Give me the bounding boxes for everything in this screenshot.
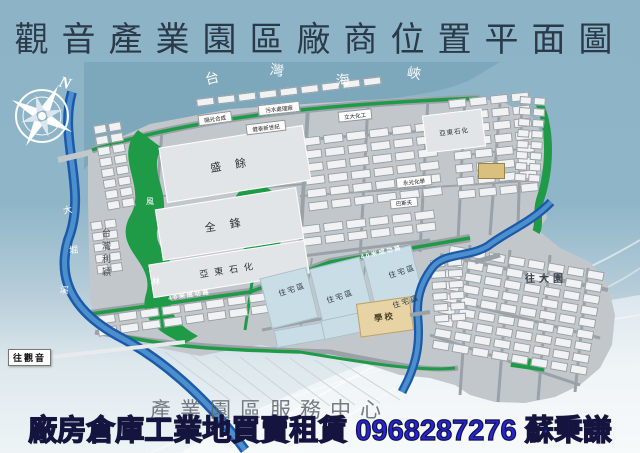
labels-layer: 住宅區住宅區住宅區住宅區學校40米成功路40米成功路台灣利穎風林台灣海峽大堀溪 [0, 0, 640, 453]
windbreak-label-char: 林 [152, 276, 160, 287]
river-label-char: 大 [62, 202, 74, 217]
north-label: N [56, 73, 75, 93]
taiwan-strait-label-char: 台 [203, 67, 221, 90]
map-stage: 盛餘全鋒亞東石化亞東石化污水處理廠陽光合成健泰新世紀立大化工永光化學巴斯夫 住宅… [0, 0, 640, 453]
road-label: 40米成功路 [360, 242, 404, 260]
direction-label-to-dayuan: 往大園 [525, 270, 567, 285]
residential-label: 住宅區 [325, 287, 356, 306]
taiwan-strait-label-char: 海 [335, 69, 351, 90]
residential-label: 住宅區 [391, 292, 422, 311]
sales-banner: 廠房倉庫工業地買賣租賃 0968287276 蘇秉謙 [0, 407, 640, 449]
school-label: 學校 [373, 310, 395, 325]
company-strip-label: 台灣利穎 [100, 228, 113, 280]
page-title: 觀音產業園區廠商位置平面圖 [0, 12, 640, 61]
road-label: 40米成功路 [168, 287, 212, 303]
taiwan-strait-label-char: 灣 [269, 59, 286, 81]
river-label-char: 溪 [59, 282, 70, 296]
compass-rose: N [6, 64, 86, 154]
residential-label: 住宅區 [277, 280, 308, 299]
residential-label: 住宅區 [387, 262, 418, 281]
direction-label-to-guanyin: 往觀音 [8, 349, 51, 366]
taiwan-strait-label-char: 峽 [405, 62, 422, 84]
river-label-char: 堀 [68, 243, 78, 257]
windbreak-label-char: 風 [146, 196, 154, 207]
